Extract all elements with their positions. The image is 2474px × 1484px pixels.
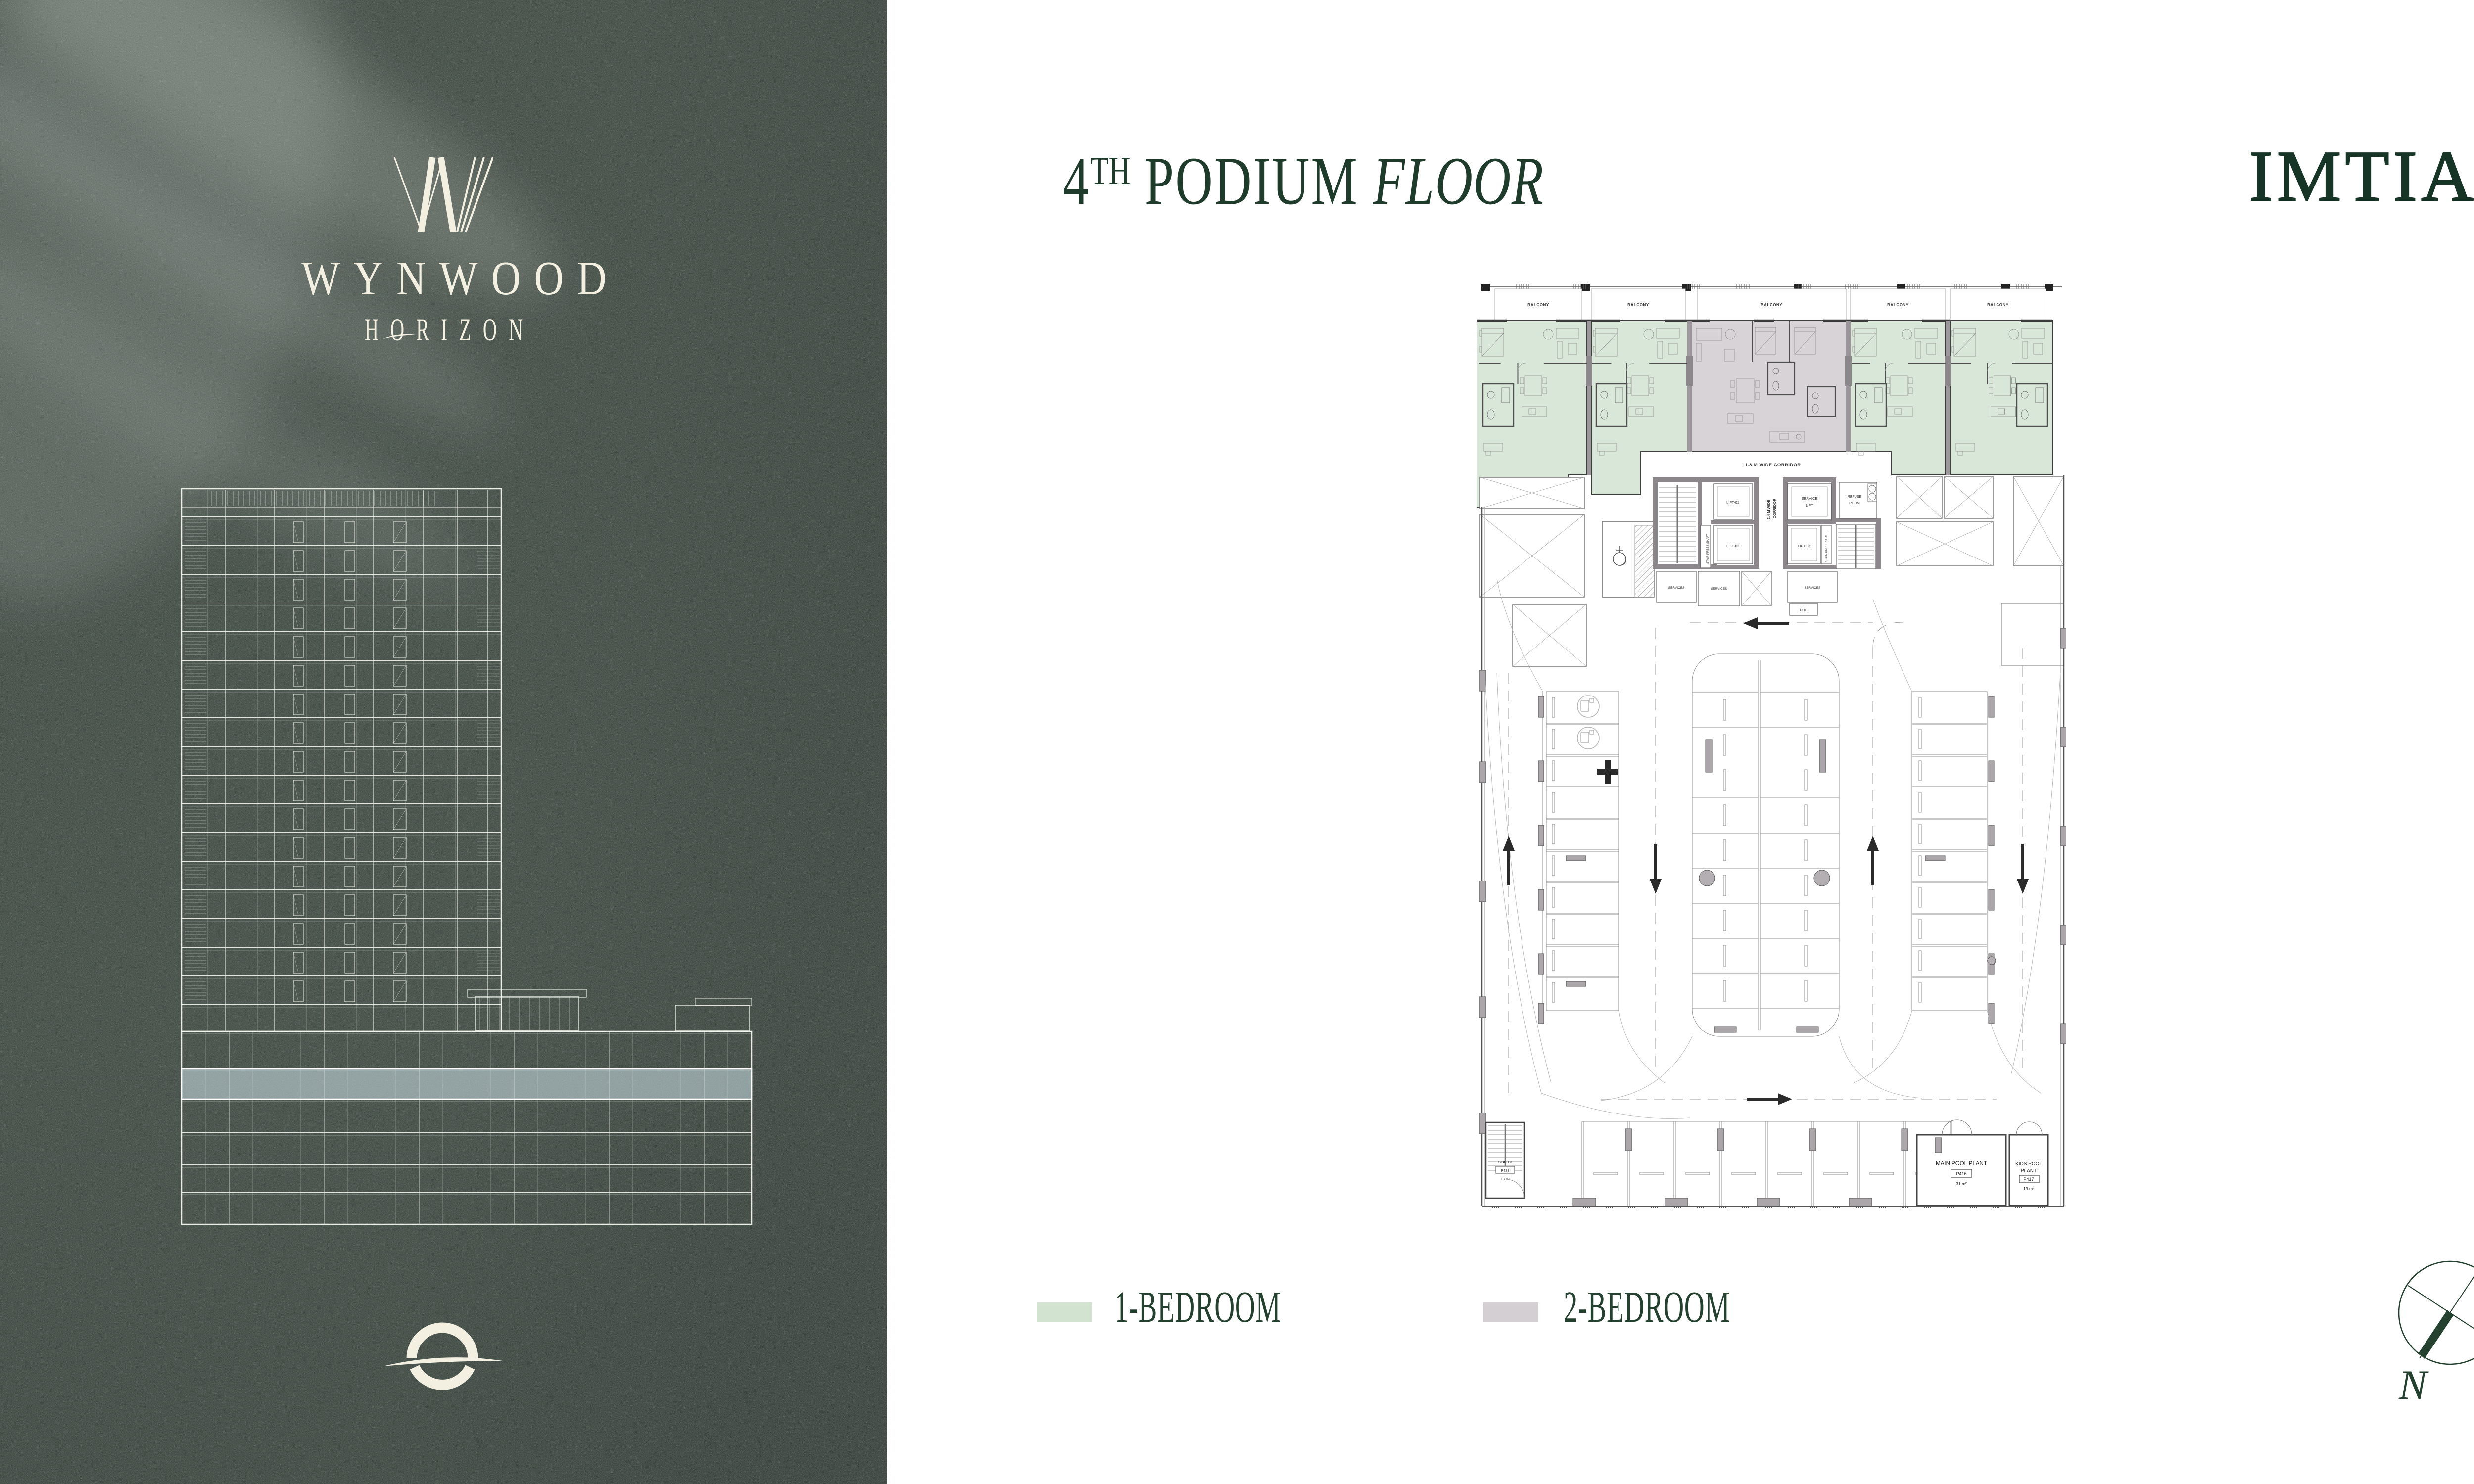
svg-text:MAIN POOL PLANT: MAIN POOL PLANT [1936, 1161, 1987, 1167]
svg-text:PLANT: PLANT [2021, 1168, 2037, 1174]
svg-text:STAIR 3: STAIR 3 [1498, 1160, 1512, 1164]
svg-text:BALCONY: BALCONY [1887, 303, 1909, 307]
svg-text:BALCONY: BALCONY [1761, 303, 1783, 307]
svg-text:P4S3: P4S3 [1501, 1169, 1509, 1173]
svg-text:13 m²: 13 m² [2023, 1186, 2034, 1191]
svg-text:FHC: FHC [1800, 609, 1807, 612]
svg-text:LIFT-02: LIFT-02 [1726, 544, 1739, 548]
svg-text:P417: P417 [2023, 1177, 2034, 1182]
svg-text:P416: P416 [1956, 1171, 1966, 1176]
svg-text:LIFT: LIFT [1806, 503, 1813, 508]
svg-text:2.4 M WIDE: 2.4 M WIDE [1766, 500, 1771, 519]
svg-text:STAIR PRESS.SHAFT: STAIR PRESS.SHAFT [1825, 532, 1828, 562]
svg-text:BALCONY: BALCONY [1527, 303, 1549, 307]
svg-text:KIDS POOL: KIDS POOL [2015, 1161, 2042, 1167]
svg-text:ROOM: ROOM [1849, 502, 1860, 505]
svg-text:LIFT-01: LIFT-01 [1726, 500, 1739, 505]
svg-text:LIFT-03: LIFT-03 [1798, 544, 1810, 548]
svg-text:REFUSE: REFUSE [1848, 495, 1862, 499]
svg-text:CORRIDOR: CORRIDOR [1772, 498, 1777, 518]
svg-text:SERVICES: SERVICES [1668, 586, 1685, 590]
svg-text:1.8 M WIDE CORRIDOR: 1.8 M WIDE CORRIDOR [1745, 463, 1801, 468]
svg-text:SERVICES: SERVICES [1711, 587, 1727, 591]
svg-text:SERVICES: SERVICES [1805, 586, 1821, 590]
svg-text:BALCONY: BALCONY [1627, 303, 1649, 307]
svg-text:N: N [2398, 1362, 2429, 1408]
svg-text:31 m²: 31 m² [1956, 1181, 1967, 1186]
svg-text:BALCONY: BALCONY [1987, 303, 2009, 307]
svg-text:STAIR PRESS.SHAFT: STAIR PRESS.SHAFT [1707, 534, 1710, 564]
svg-text:SERVICE: SERVICE [1802, 496, 1818, 501]
